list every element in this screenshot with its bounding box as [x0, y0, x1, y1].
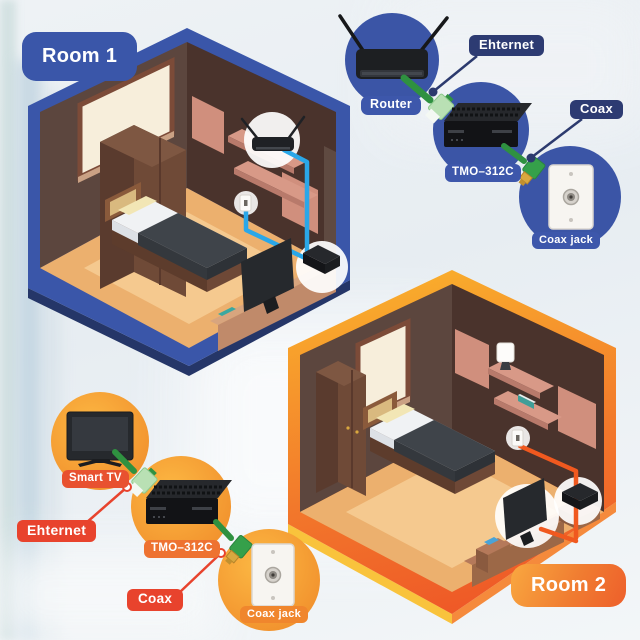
room1-wall-panel — [324, 146, 336, 258]
coax-label-bottom: Coax — [127, 589, 183, 611]
wall-jack-icon — [512, 430, 523, 446]
adapter-label-bottom: TMO–312C — [144, 540, 220, 558]
coax-jack-label-bottom: Coax jack — [240, 606, 308, 623]
ethernet-label-top: Ehternet — [469, 35, 544, 56]
coax-jack-label-top: Coax jack — [532, 232, 600, 249]
adapter-label-top: TMO–312C — [445, 164, 521, 182]
wall-jack-icon — [240, 195, 251, 211]
coax-wall-plate-icon — [549, 165, 593, 229]
room2-wardrobe — [316, 361, 366, 496]
illustration-svg — [0, 0, 640, 640]
router-label: Router — [361, 96, 421, 115]
coax-wall-plate-icon — [252, 544, 294, 606]
ethernet-label-bottom: Ehternet — [17, 520, 96, 542]
room1-label: Room 1 — [22, 32, 137, 81]
infographic-canvas: Room 1 Room 2 Router Ehternet TMO–312C C… — [0, 0, 640, 640]
smart-tv-label: Smart TV — [62, 470, 129, 488]
bottom-connection-diagram — [51, 392, 320, 631]
room2-label: Room 2 — [511, 564, 626, 607]
coax-label-top: Coax — [570, 100, 623, 119]
